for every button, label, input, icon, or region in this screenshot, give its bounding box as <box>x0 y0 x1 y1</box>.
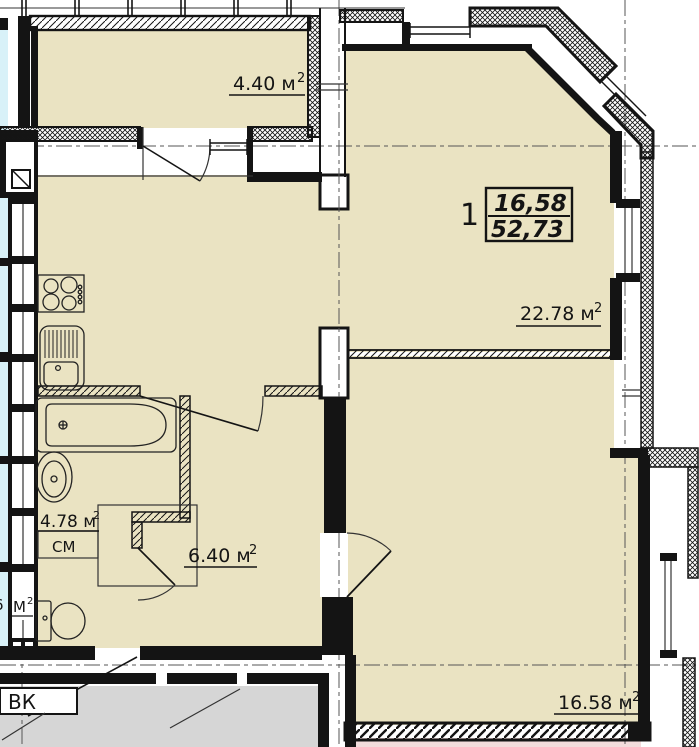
vk-label: ВК <box>8 690 36 714</box>
svg-text:4.78 м: 4.78 м <box>40 512 96 532</box>
bedroom-window <box>660 553 677 658</box>
balcony-bottom-wall <box>0 127 140 141</box>
kitchen-living-area-label: 22.78 м 2 <box>516 301 602 326</box>
apartment-rooms-count: 1 <box>460 198 479 233</box>
svg-text:2: 2 <box>93 509 100 522</box>
svg-text:2: 2 <box>27 596 33 607</box>
svg-text:2: 2 <box>594 301 602 316</box>
bedroom-area-label: 16.58 м 2 <box>554 690 640 714</box>
edge-partial-digit: 6 <box>0 596 4 614</box>
living-area-value: 16,58 <box>494 191 567 217</box>
hallway-area-label: 6.40 м 2 <box>184 543 257 567</box>
pillar-stub-mid <box>320 328 348 398</box>
balcony-parapet <box>30 16 310 30</box>
svg-text:4.40 м: 4.40 м <box>233 73 296 95</box>
room-bedroom <box>345 356 644 725</box>
balcony-area-label: 4.40 м 2 <box>229 71 305 95</box>
living-window <box>616 199 640 282</box>
total-area-value: 52,73 <box>491 217 564 243</box>
bedroom-door-gap <box>320 533 348 597</box>
bay-window-top <box>410 23 470 38</box>
shaft-cells <box>12 204 34 654</box>
svg-text:2: 2 <box>297 71 305 86</box>
svg-text:2: 2 <box>249 543 257 558</box>
svg-text:2: 2 <box>632 690 640 705</box>
washing-machine-label: СМ <box>52 538 75 556</box>
kitchen-window <box>210 139 247 155</box>
vk-box: ВК <box>0 688 77 714</box>
floor-plan-page: 4.40 м 2 22.78 м 2 4.78 м 2 СМ 6.40 м 2 … <box>0 0 699 747</box>
svg-text:6.40 м: 6.40 м <box>188 545 251 567</box>
svg-text:М: М <box>13 598 26 616</box>
floor-plan: 4.40 м 2 22.78 м 2 4.78 м 2 СМ 6.40 м 2 … <box>0 0 699 747</box>
svg-text:22.78 м: 22.78 м <box>520 303 595 325</box>
balcony-door <box>143 127 210 181</box>
pillar-stub-top <box>320 175 348 209</box>
bedroom-bottom-wall <box>345 723 650 740</box>
living-bedroom-wall <box>348 350 614 358</box>
outer-wall-right <box>641 152 653 448</box>
svg-text:16.58 м: 16.58 м <box>558 692 633 714</box>
